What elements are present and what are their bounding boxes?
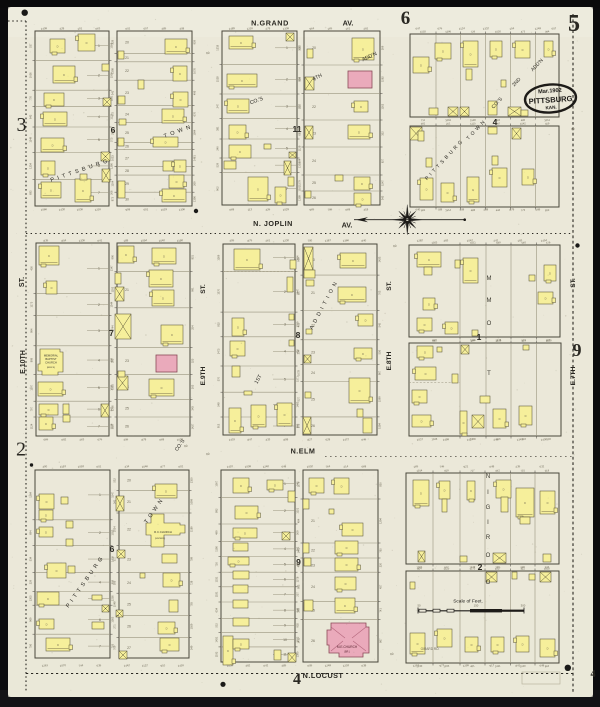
- svg-text:D: D: [470, 53, 472, 57]
- svg-text:4: 4: [98, 115, 100, 119]
- svg-text:D: D: [284, 413, 286, 417]
- svg-text:D: D: [417, 642, 419, 646]
- svg-text:703: 703: [378, 290, 382, 295]
- svg-text:343: 343: [191, 406, 195, 411]
- svg-text:R.C.CHURCH: R.C.CHURCH: [154, 530, 172, 534]
- svg-text:D: D: [444, 489, 446, 493]
- svg-text:150: 150: [474, 604, 479, 608]
- svg-text:50: 50: [417, 604, 421, 608]
- svg-text:D: D: [175, 45, 177, 49]
- svg-text:352: 352: [381, 131, 385, 136]
- svg-text:D: D: [359, 389, 361, 393]
- svg-text:2: 2: [478, 562, 483, 572]
- svg-text:D: D: [237, 131, 239, 135]
- svg-text:D: D: [50, 189, 52, 193]
- svg-text:D: D: [522, 643, 524, 647]
- svg-text:675: 675: [111, 111, 115, 116]
- svg-text:D: D: [246, 258, 248, 262]
- svg-text:D: D: [47, 167, 49, 171]
- svg-text:D: D: [358, 131, 360, 135]
- svg-text:7: 7: [98, 191, 100, 195]
- svg-text:5: 5: [568, 11, 580, 37]
- svg-text:ST.: ST.: [570, 278, 577, 288]
- svg-text:5: 5: [286, 147, 288, 151]
- svg-text:26: 26: [311, 424, 315, 428]
- svg-text:D: D: [82, 189, 84, 193]
- svg-text:Scale of Feet.: Scale of Feet.: [453, 599, 483, 605]
- svg-text:1389: 1389: [298, 195, 302, 201]
- svg-text:D: D: [171, 579, 173, 583]
- svg-text:248: 248: [297, 608, 301, 613]
- svg-text:694: 694: [29, 530, 33, 535]
- svg-text:D: D: [447, 191, 449, 195]
- svg-text:D: D: [50, 388, 52, 392]
- svg-text:990: 990: [111, 254, 115, 259]
- svg-text:N.LOCUST: N.LOCUST: [303, 671, 344, 680]
- svg-text:M: M: [487, 298, 492, 304]
- svg-text:4: 4: [284, 350, 286, 354]
- svg-text:25: 25: [127, 603, 131, 607]
- svg-text:D: D: [237, 326, 239, 330]
- svg-text:1128: 1128: [298, 145, 302, 151]
- svg-text:457: 457: [379, 584, 383, 589]
- svg-text:240: 240: [216, 146, 220, 151]
- svg-text:206: 206: [110, 190, 114, 195]
- svg-text:D: D: [470, 269, 472, 273]
- svg-text:(BR.): (BR.): [344, 651, 350, 654]
- svg-text:CHURCH: CHURCH: [45, 361, 57, 365]
- svg-text:D: D: [246, 511, 248, 515]
- svg-text:1094: 1094: [193, 129, 197, 135]
- svg-text:1431: 1431: [215, 636, 219, 642]
- svg-text:D: D: [522, 48, 524, 52]
- svg-text:534: 534: [29, 556, 33, 561]
- svg-text:4: 4: [591, 669, 596, 680]
- svg-text:1326: 1326: [431, 437, 438, 442]
- svg-text:E.7TH: E.7TH: [570, 366, 577, 385]
- svg-text:20: 20: [125, 40, 129, 44]
- svg-text:1396: 1396: [445, 29, 452, 34]
- svg-text:D: D: [238, 560, 240, 564]
- svg-text:1249: 1249: [29, 136, 33, 142]
- svg-text:11: 11: [283, 653, 287, 657]
- svg-text:604: 604: [298, 158, 302, 163]
- svg-text:24: 24: [312, 159, 316, 163]
- svg-text:257: 257: [296, 592, 300, 597]
- svg-text:955: 955: [296, 623, 300, 628]
- svg-text:1162: 1162: [381, 103, 385, 109]
- svg-text:(SISTERS): (SISTERS): [155, 538, 166, 540]
- svg-text:515: 515: [215, 623, 219, 628]
- svg-text:24: 24: [311, 371, 315, 375]
- svg-text:994: 994: [30, 328, 34, 333]
- svg-text:D: D: [166, 627, 168, 631]
- svg-text:913: 913: [217, 423, 221, 428]
- svg-text:537: 537: [29, 43, 33, 48]
- svg-text:D: D: [471, 643, 473, 647]
- svg-text:D: D: [362, 352, 364, 356]
- svg-text:D: D: [45, 531, 47, 535]
- svg-text:1461: 1461: [193, 155, 197, 161]
- svg-text:852: 852: [217, 322, 221, 327]
- svg-text:D: D: [244, 532, 246, 536]
- svg-text:9: 9: [284, 624, 286, 628]
- svg-text:D: D: [274, 484, 276, 488]
- svg-text:229: 229: [29, 579, 33, 584]
- svg-text:1203: 1203: [443, 664, 450, 669]
- svg-text:26: 26: [312, 196, 316, 200]
- svg-text:627: 627: [381, 158, 385, 163]
- svg-text:D: D: [549, 272, 551, 276]
- svg-text:1347: 1347: [110, 265, 114, 271]
- svg-text:D: D: [239, 150, 241, 154]
- svg-text:1181: 1181: [215, 591, 219, 597]
- svg-text:1189: 1189: [190, 526, 194, 532]
- svg-text:1007: 1007: [215, 480, 219, 486]
- svg-text:5: 5: [284, 377, 286, 381]
- svg-text:D: D: [497, 643, 499, 647]
- svg-text:525: 525: [191, 358, 195, 363]
- svg-text:1584: 1584: [378, 423, 382, 429]
- svg-text:D: D: [341, 485, 343, 489]
- svg-text:D: D: [428, 258, 430, 262]
- svg-text:1192: 1192: [298, 45, 302, 51]
- svg-text:1565: 1565: [111, 616, 115, 622]
- svg-text:D: D: [46, 623, 48, 627]
- svg-text:23: 23: [125, 91, 129, 95]
- svg-text:276: 276: [298, 104, 302, 109]
- svg-text:741: 741: [379, 608, 383, 613]
- svg-text:D: D: [53, 98, 55, 102]
- svg-text:D: D: [240, 643, 242, 647]
- svg-text:634: 634: [215, 607, 219, 612]
- svg-text:545: 545: [378, 322, 382, 327]
- svg-text:ST.: ST.: [386, 281, 393, 291]
- svg-text:D: D: [47, 597, 49, 601]
- svg-text:1192: 1192: [215, 651, 219, 657]
- svg-text:D: D: [171, 333, 173, 337]
- svg-text:549: 549: [190, 645, 194, 650]
- svg-text:1: 1: [98, 267, 100, 271]
- svg-text:5: 5: [98, 138, 100, 142]
- svg-text:455: 455: [298, 126, 302, 131]
- svg-text:D: D: [86, 41, 88, 45]
- svg-text:D: D: [344, 604, 346, 608]
- svg-text:D: D: [240, 41, 242, 45]
- svg-text:1423: 1423: [378, 256, 382, 262]
- svg-text:892: 892: [215, 508, 219, 513]
- svg-text:716: 716: [215, 562, 219, 567]
- svg-text:28: 28: [125, 169, 129, 173]
- svg-text:D: D: [444, 637, 446, 641]
- svg-text:681: 681: [298, 131, 302, 136]
- svg-text:D: D: [525, 414, 527, 418]
- svg-text:23: 23: [127, 557, 131, 561]
- svg-text:1562: 1562: [381, 76, 385, 82]
- svg-text:D: D: [51, 286, 53, 290]
- svg-text:D: D: [463, 421, 465, 425]
- svg-text:D: D: [351, 293, 353, 297]
- svg-text:1269: 1269: [217, 254, 221, 260]
- svg-text:T: T: [487, 371, 491, 377]
- svg-text:391: 391: [111, 358, 115, 363]
- svg-text:D: D: [420, 492, 422, 496]
- svg-text:676: 676: [193, 111, 197, 116]
- svg-text:D: D: [46, 500, 48, 504]
- svg-text:21: 21: [125, 288, 129, 292]
- svg-text:4: 4: [99, 580, 101, 584]
- svg-text:D: D: [176, 180, 178, 184]
- svg-text:1427: 1427: [191, 423, 195, 429]
- svg-text:D: D: [524, 501, 526, 505]
- svg-text:1521: 1521: [296, 507, 300, 513]
- svg-text:E.9TH: E.9TH: [200, 366, 207, 385]
- svg-text:D: D: [57, 643, 59, 647]
- svg-text:1230: 1230: [416, 664, 423, 669]
- svg-text:21: 21: [311, 519, 315, 523]
- svg-text:24: 24: [125, 112, 129, 116]
- svg-text:1327: 1327: [111, 423, 115, 429]
- svg-text:D: D: [179, 165, 181, 169]
- svg-text:29: 29: [125, 182, 129, 186]
- svg-text:22: 22: [312, 105, 316, 109]
- svg-text:1306: 1306: [193, 196, 197, 202]
- svg-text:1014: 1014: [416, 468, 423, 473]
- svg-text:D: D: [179, 72, 181, 76]
- svg-text:D: D: [425, 372, 427, 376]
- svg-text:D: D: [503, 488, 505, 492]
- svg-text:D: D: [48, 408, 50, 412]
- svg-text:3: 3: [98, 97, 100, 101]
- svg-text:D: D: [63, 73, 65, 77]
- svg-text:D: D: [527, 176, 529, 180]
- svg-text:1514: 1514: [445, 208, 452, 213]
- svg-text:3: 3: [17, 114, 27, 136]
- svg-text:D: D: [162, 297, 164, 301]
- svg-text:1370: 1370: [217, 288, 221, 294]
- svg-text:1033: 1033: [111, 155, 115, 161]
- svg-text:D: D: [257, 188, 259, 192]
- svg-text:D: D: [424, 351, 426, 355]
- svg-text:D: D: [163, 255, 165, 259]
- svg-text:D: D: [125, 253, 127, 257]
- svg-text:2: 2: [98, 303, 100, 307]
- svg-text:GIRARD RD.: GIRARD RD.: [421, 647, 440, 651]
- svg-text:20: 20: [127, 479, 131, 483]
- svg-text:22: 22: [127, 527, 131, 531]
- svg-text:1294: 1294: [379, 518, 383, 524]
- svg-text:5: 5: [284, 563, 286, 567]
- svg-text:26: 26: [311, 639, 315, 643]
- svg-text:25: 25: [311, 397, 315, 401]
- svg-text:1415: 1415: [297, 637, 301, 643]
- svg-text:D: D: [362, 48, 364, 52]
- svg-text:D: D: [165, 141, 167, 145]
- svg-text:23: 23: [125, 359, 129, 363]
- svg-text:1240: 1240: [520, 664, 527, 669]
- svg-text:575: 575: [110, 137, 114, 142]
- svg-text:1390: 1390: [296, 651, 300, 657]
- svg-text:D: D: [352, 528, 354, 532]
- svg-text:1233: 1233: [495, 338, 502, 343]
- svg-text:D: D: [237, 347, 239, 351]
- svg-text:D: D: [45, 422, 47, 426]
- svg-text:D: D: [442, 50, 444, 54]
- svg-text:D: D: [54, 118, 56, 122]
- svg-text:(BRICK): (BRICK): [47, 367, 55, 369]
- svg-text:9: 9: [573, 340, 582, 360]
- svg-text:4: 4: [98, 358, 100, 362]
- svg-text:D: D: [426, 188, 428, 192]
- svg-text:10: 10: [283, 638, 287, 642]
- svg-text:1276: 1276: [296, 576, 300, 582]
- svg-text:1431: 1431: [495, 664, 502, 669]
- svg-text:1547: 1547: [111, 491, 115, 497]
- svg-text:6: 6: [401, 8, 411, 29]
- svg-text:N: N: [486, 474, 490, 480]
- svg-text:1034: 1034: [113, 526, 117, 532]
- svg-text:527: 527: [297, 396, 301, 401]
- svg-text:24: 24: [311, 585, 315, 589]
- svg-text:ST.: ST.: [19, 277, 26, 287]
- svg-text:25: 25: [125, 407, 129, 411]
- svg-text:830: 830: [379, 482, 383, 487]
- svg-text:D: D: [57, 45, 59, 49]
- svg-text:744: 744: [111, 325, 115, 330]
- svg-text:548: 548: [217, 402, 221, 407]
- svg-text:D: D: [420, 64, 422, 68]
- svg-text:509: 509: [296, 530, 300, 535]
- svg-text:1215: 1215: [111, 384, 115, 390]
- svg-text:1547: 1547: [381, 180, 385, 186]
- svg-text:381: 381: [216, 126, 220, 131]
- svg-text:23: 23: [311, 350, 315, 354]
- svg-text:345: 345: [381, 195, 385, 200]
- svg-text:967: 967: [378, 370, 382, 375]
- svg-text:902: 902: [216, 186, 220, 191]
- svg-text:317: 317: [113, 556, 117, 561]
- svg-text:1124: 1124: [30, 423, 34, 429]
- svg-text:1076: 1076: [193, 68, 197, 74]
- svg-text:M: M: [487, 276, 492, 282]
- svg-text:1011: 1011: [470, 240, 477, 245]
- svg-text:D: D: [48, 254, 50, 258]
- svg-text:D: D: [160, 277, 162, 281]
- svg-text:D: D: [428, 303, 430, 307]
- svg-text:N. JOPLIN: N. JOPLIN: [253, 219, 293, 228]
- svg-text:D: D: [547, 501, 549, 505]
- svg-text:8: 8: [296, 330, 301, 340]
- svg-text:D: D: [172, 115, 174, 119]
- svg-text:496: 496: [193, 90, 197, 95]
- svg-text:BAPTIST: BAPTIST: [45, 357, 57, 361]
- svg-text:7: 7: [99, 644, 101, 648]
- svg-text:2: 2: [16, 439, 26, 461]
- svg-text:269: 269: [193, 181, 197, 186]
- svg-text:341: 341: [113, 499, 117, 504]
- svg-text:4: 4: [284, 547, 286, 551]
- svg-text:286: 286: [111, 130, 115, 135]
- svg-text:D: D: [169, 643, 171, 647]
- svg-text:6: 6: [98, 407, 100, 411]
- svg-text:851: 851: [191, 254, 195, 259]
- svg-text:3: 3: [286, 104, 288, 108]
- svg-text:1078: 1078: [297, 370, 301, 376]
- svg-text:1234: 1234: [29, 163, 33, 169]
- svg-text:22: 22: [125, 69, 129, 73]
- svg-text:O: O: [486, 553, 491, 559]
- svg-text:959: 959: [193, 39, 197, 44]
- svg-text:3: 3: [284, 323, 286, 327]
- svg-text:26: 26: [127, 625, 131, 629]
- svg-text:1: 1: [286, 46, 288, 50]
- svg-text:1548: 1548: [113, 601, 117, 607]
- svg-text:D: D: [173, 194, 175, 198]
- svg-text:D: D: [499, 176, 501, 180]
- svg-text:7: 7: [286, 187, 288, 191]
- svg-text:969: 969: [29, 617, 33, 622]
- svg-text:556: 556: [378, 349, 382, 354]
- svg-text:30: 30: [125, 197, 129, 201]
- svg-text:1303: 1303: [431, 240, 438, 245]
- svg-text:4: 4: [286, 127, 288, 131]
- svg-text:D: D: [362, 198, 364, 202]
- svg-text:27: 27: [127, 646, 131, 650]
- svg-text:D: D: [365, 319, 367, 323]
- svg-text:873: 873: [111, 196, 115, 201]
- svg-text:D: D: [451, 327, 453, 331]
- svg-text:1531: 1531: [215, 576, 219, 582]
- svg-text:D: D: [424, 323, 426, 327]
- svg-text:4: 4: [293, 671, 301, 688]
- svg-text:582: 582: [298, 76, 302, 81]
- svg-text:1: 1: [284, 256, 286, 260]
- svg-text:E.8TH: E.8TH: [386, 351, 393, 370]
- svg-text:1317: 1317: [495, 566, 502, 571]
- svg-text:1150: 1150: [546, 338, 553, 343]
- svg-text:728: 728: [190, 580, 194, 585]
- svg-text:D: D: [280, 194, 282, 198]
- svg-text:1518: 1518: [420, 29, 427, 34]
- svg-text:991: 991: [191, 287, 195, 292]
- svg-text:898: 898: [30, 357, 34, 362]
- svg-text:26: 26: [125, 425, 129, 429]
- svg-text:1350: 1350: [190, 477, 194, 483]
- svg-text:D: D: [161, 386, 163, 390]
- svg-text:827: 827: [297, 290, 301, 295]
- svg-text:KAN.: KAN.: [545, 105, 557, 111]
- svg-text:D: D: [419, 395, 421, 399]
- svg-text:642: 642: [29, 114, 33, 119]
- svg-text:983: 983: [297, 584, 301, 589]
- svg-text:7: 7: [284, 593, 286, 597]
- svg-text:D: D: [316, 484, 318, 488]
- svg-text:6: 6: [99, 618, 101, 622]
- svg-text:D: D: [360, 105, 362, 109]
- svg-text:O: O: [487, 321, 492, 327]
- svg-text:D: D: [352, 259, 354, 263]
- svg-text:254: 254: [191, 325, 195, 330]
- svg-text:ST.: ST.: [200, 284, 207, 294]
- svg-text:D: D: [240, 484, 242, 488]
- svg-text:D: D: [346, 563, 348, 567]
- svg-text:228: 228: [111, 39, 115, 44]
- svg-text:5: 5: [98, 386, 100, 390]
- svg-text:D: D: [52, 144, 54, 148]
- svg-text:8: 8: [284, 608, 286, 612]
- svg-text:1056: 1056: [29, 72, 33, 78]
- svg-text:D: D: [421, 420, 423, 424]
